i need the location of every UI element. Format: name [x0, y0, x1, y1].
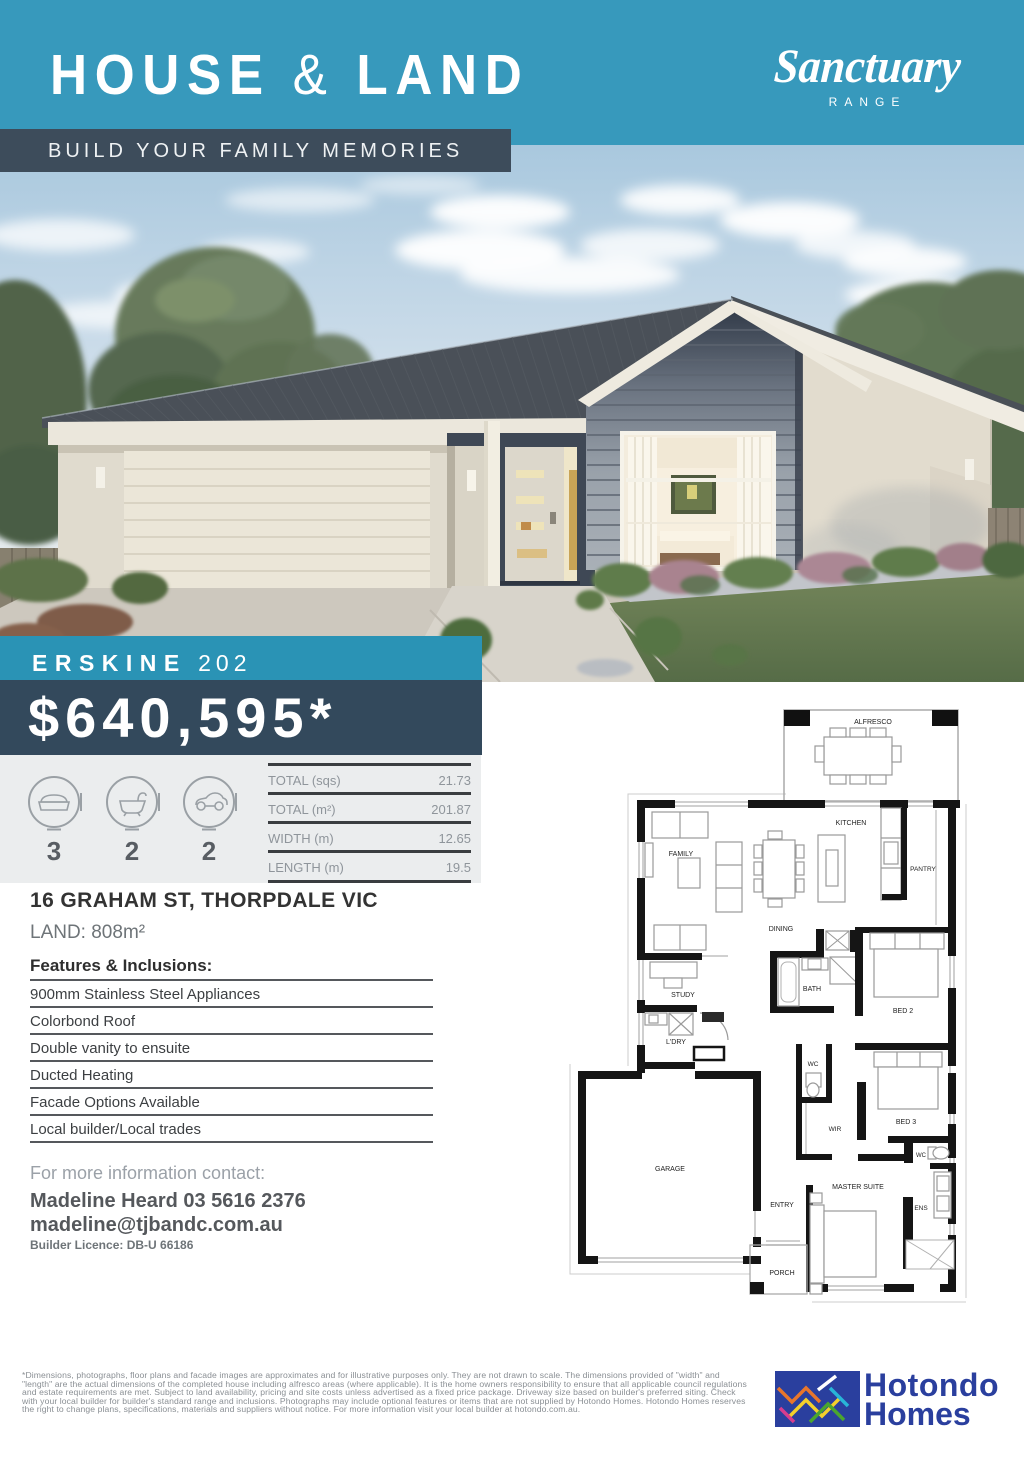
svg-text:L'DRY: L'DRY — [666, 1039, 686, 1046]
svg-text:MASTER SUITE: MASTER SUITE — [832, 1184, 884, 1191]
svg-text:PORCH: PORCH — [769, 1270, 794, 1277]
svg-text:WIR: WIR — [829, 1126, 842, 1133]
svg-text:BED 2: BED 2 — [893, 1008, 913, 1015]
svg-text:WC: WC — [916, 1153, 927, 1159]
svg-text:DINING: DINING — [769, 926, 794, 933]
svg-text:3: 3 — [47, 836, 61, 866]
svg-text:GARAGE: GARAGE — [655, 1166, 685, 1173]
svg-text:BATH: BATH — [803, 986, 821, 993]
svg-text:ALFRESCO: ALFRESCO — [854, 719, 892, 726]
svg-text:2: 2 — [202, 836, 216, 866]
svg-text:2: 2 — [125, 836, 139, 866]
svg-text:WC: WC — [808, 1061, 819, 1068]
svg-text:KITCHEN: KITCHEN — [836, 820, 867, 827]
svg-text:ENTRY: ENTRY — [770, 1202, 794, 1209]
svg-text:Homes: Homes — [864, 1396, 971, 1430]
svg-text:STUDY: STUDY — [671, 992, 695, 999]
svg-text:PANTRY: PANTRY — [910, 866, 936, 873]
svg-text:BED 3: BED 3 — [896, 1119, 916, 1126]
svg-text:ENS: ENS — [914, 1205, 928, 1212]
svg-text:FAMILY: FAMILY — [669, 851, 694, 858]
